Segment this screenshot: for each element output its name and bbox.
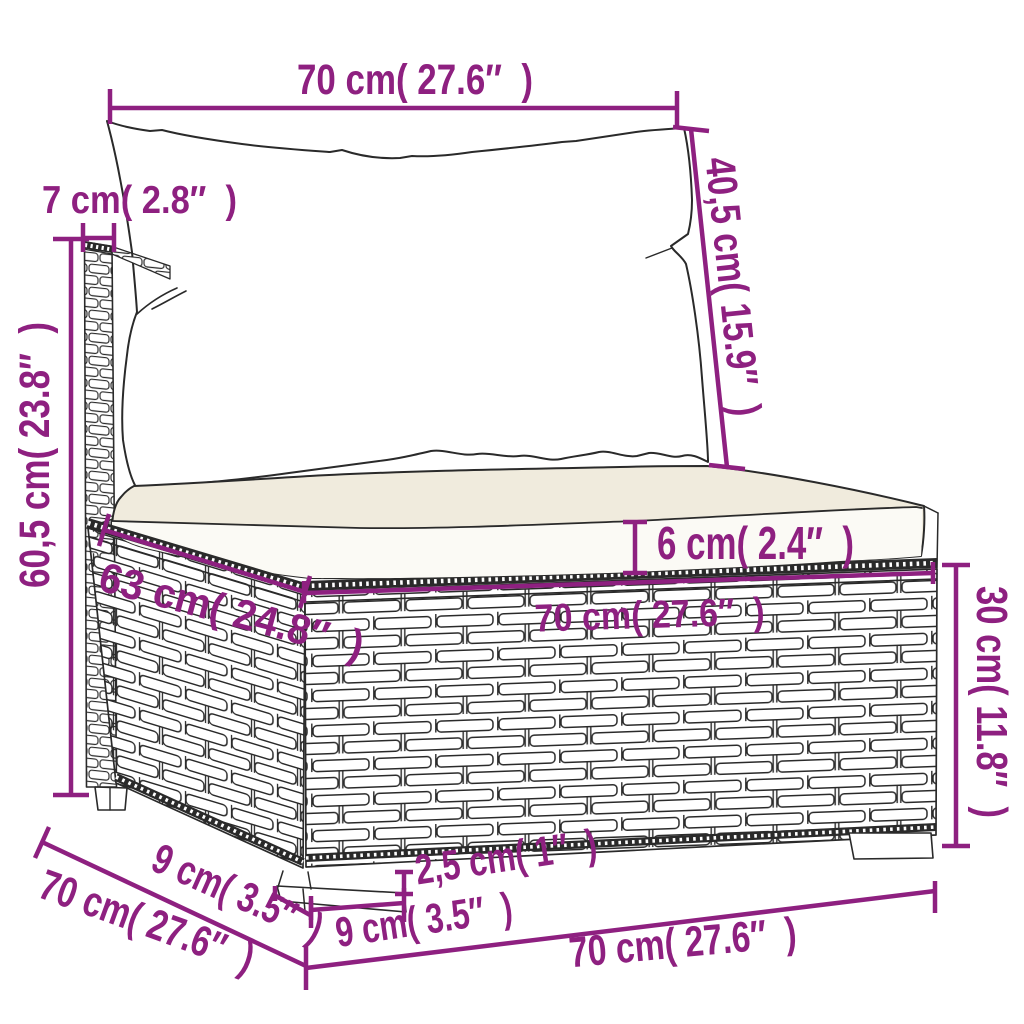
svg-text:70 cm( 27.6″ ): 70 cm( 27.6″ ) [534, 590, 765, 640]
svg-text:30 cm( 11.8″ ): 30 cm( 11.8″ ) [967, 586, 1016, 818]
svg-text:7 cm( 2.8″ ): 7 cm( 2.8″ ) [42, 179, 237, 222]
svg-text:6 cm( 2.4″ ): 6 cm( 2.4″ ) [657, 517, 854, 569]
svg-text:60,5 cm( 23.8″ ): 60,5 cm( 23.8″ ) [11, 322, 59, 588]
svg-text:70 cm( 27.6″ ): 70 cm( 27.6″ ) [297, 56, 533, 104]
